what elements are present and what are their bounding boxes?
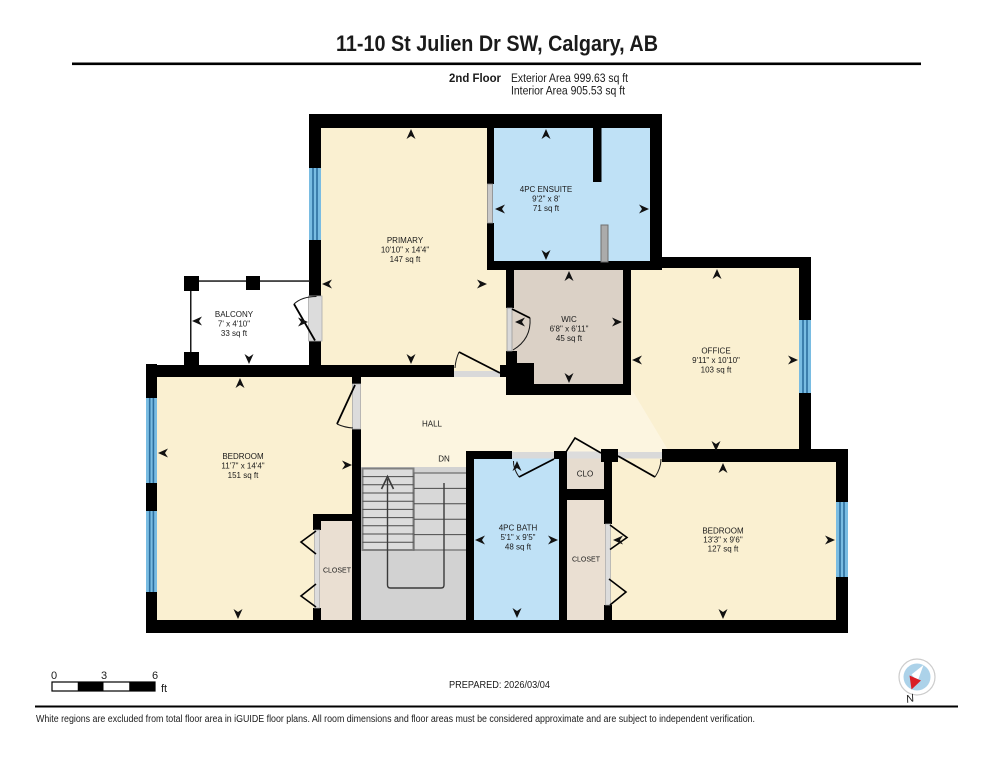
svg-text:BEDROOM: BEDROOM — [702, 527, 744, 536]
svg-text:11-10 St Julien Dr SW, Calgary: 11-10 St Julien Dr SW, Calgary, AB — [336, 31, 658, 56]
svg-text:OFFICE: OFFICE — [701, 347, 730, 356]
svg-text:DN: DN — [438, 455, 450, 464]
svg-text:2nd Floor: 2nd Floor — [449, 71, 501, 85]
svg-text:10'10" x 14'4": 10'10" x 14'4" — [381, 246, 429, 255]
svg-text:4PC BATH: 4PC BATH — [499, 524, 538, 533]
svg-text:151 sq ft: 151 sq ft — [228, 471, 259, 480]
svg-text:147 sq ft: 147 sq ft — [390, 255, 421, 264]
svg-text:0: 0 — [51, 670, 57, 682]
svg-text:9'11" x 10'10": 9'11" x 10'10" — [692, 356, 740, 365]
svg-text:6: 6 — [152, 670, 158, 682]
svg-text:48 sq ft: 48 sq ft — [505, 543, 532, 552]
svg-text:HALL: HALL — [422, 420, 443, 429]
svg-text:3: 3 — [101, 670, 107, 682]
svg-text:CLOSET: CLOSET — [572, 557, 601, 564]
svg-text:6'8" x 6'11": 6'8" x 6'11" — [550, 325, 589, 334]
svg-text:71 sq ft: 71 sq ft — [533, 204, 560, 213]
svg-text:5'1" x 9'5": 5'1" x 9'5" — [501, 533, 536, 542]
svg-text:BALCONY: BALCONY — [215, 310, 254, 319]
svg-text:13'3" x 9'6": 13'3" x 9'6" — [703, 536, 743, 545]
svg-text:7' x 4'10": 7' x 4'10" — [218, 320, 250, 329]
svg-text:103 sq ft: 103 sq ft — [701, 366, 732, 375]
svg-text:BEDROOM: BEDROOM — [222, 452, 264, 461]
svg-text:Interior Area 905.53 sq ft: Interior Area 905.53 sq ft — [511, 84, 625, 98]
svg-text:4PC ENSUITE: 4PC ENSUITE — [520, 185, 572, 194]
svg-text:CLOSET: CLOSET — [323, 568, 352, 575]
svg-text:127 sq ft: 127 sq ft — [708, 545, 739, 554]
svg-text:45 sq ft: 45 sq ft — [556, 334, 583, 343]
svg-text:33 sq ft: 33 sq ft — [221, 329, 248, 338]
svg-text:9'2" x 8': 9'2" x 8' — [532, 195, 560, 204]
svg-text:ft: ft — [161, 683, 167, 695]
svg-text:CLO: CLO — [577, 470, 593, 479]
svg-text:WIC: WIC — [561, 315, 577, 324]
svg-text:11'7" x 14'4": 11'7" x 14'4" — [221, 462, 264, 471]
svg-text:PRIMARY: PRIMARY — [387, 236, 424, 245]
svg-text:White regions are excluded fro: White regions are excluded from total fl… — [36, 714, 755, 725]
svg-text:PREPARED: 2026/03/04: PREPARED: 2026/03/04 — [449, 680, 550, 691]
